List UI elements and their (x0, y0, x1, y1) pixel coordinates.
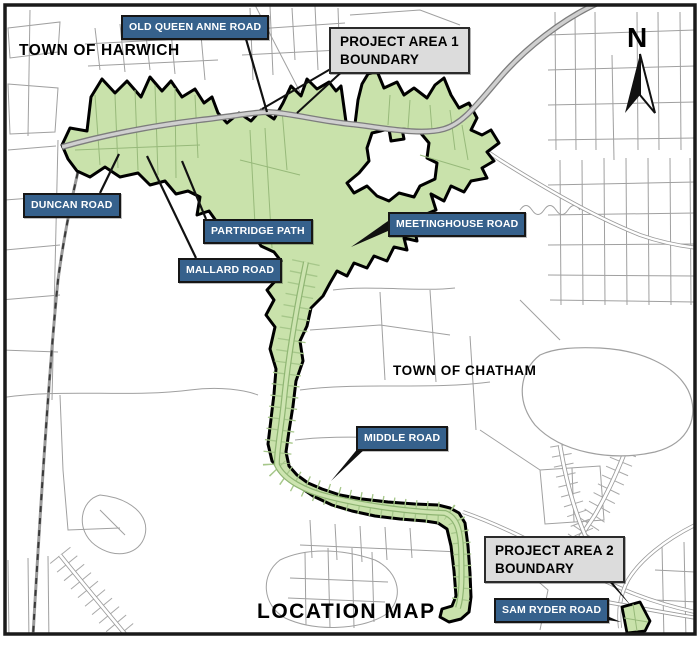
town-of-harwich-label: TOWN OF HARWICH (19, 42, 180, 60)
old-queen-anne-road-label: OLD QUEEN ANNE ROAD (121, 15, 269, 40)
duncan-road-label: DUNCAN ROAD (23, 193, 121, 218)
leader-middle (331, 447, 367, 481)
middle-road-label: MIDDLE ROAD (356, 426, 448, 451)
location-map-figure: TOWN OF HARWICH TOWN OF CHATHAM LOCATION… (0, 0, 700, 647)
project-area-1-boundary-label: PROJECT AREA 1 BOUNDARY (329, 27, 470, 74)
map-title: LOCATION MAP (257, 600, 436, 624)
north-arrow-n-label: N (627, 24, 647, 52)
project-area-2-boundary-label: PROJECT AREA 2 BOUNDARY (484, 536, 625, 583)
north-arrow-icon (625, 54, 655, 113)
partridge-path-label: PARTRIDGE PATH (203, 219, 313, 244)
leader-old-queen-anne (246, 39, 267, 112)
pond (522, 348, 693, 456)
project-area-2-polygon (622, 602, 650, 633)
mallard-road-label: MALLARD ROAD (178, 258, 282, 283)
sam-ryder-road-label: SAM RYDER ROAD (494, 598, 609, 623)
town-of-chatham-label: TOWN OF CHATHAM (393, 363, 536, 378)
meetinghouse-road-label: MEETINGHOUSE ROAD (388, 212, 526, 237)
